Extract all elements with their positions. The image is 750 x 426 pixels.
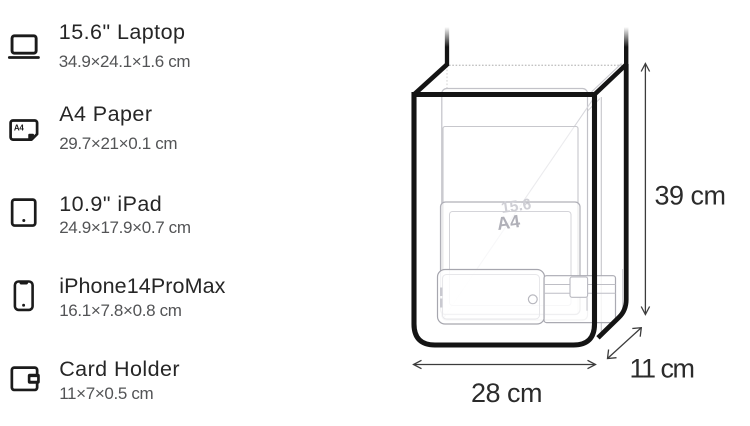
svg-text:11 cm: 11 cm: [630, 354, 694, 384]
svg-text:39 cm: 39 cm: [655, 181, 726, 211]
svg-text:28 cm: 28 cm: [471, 378, 542, 408]
svg-text:A4: A4: [496, 211, 522, 234]
